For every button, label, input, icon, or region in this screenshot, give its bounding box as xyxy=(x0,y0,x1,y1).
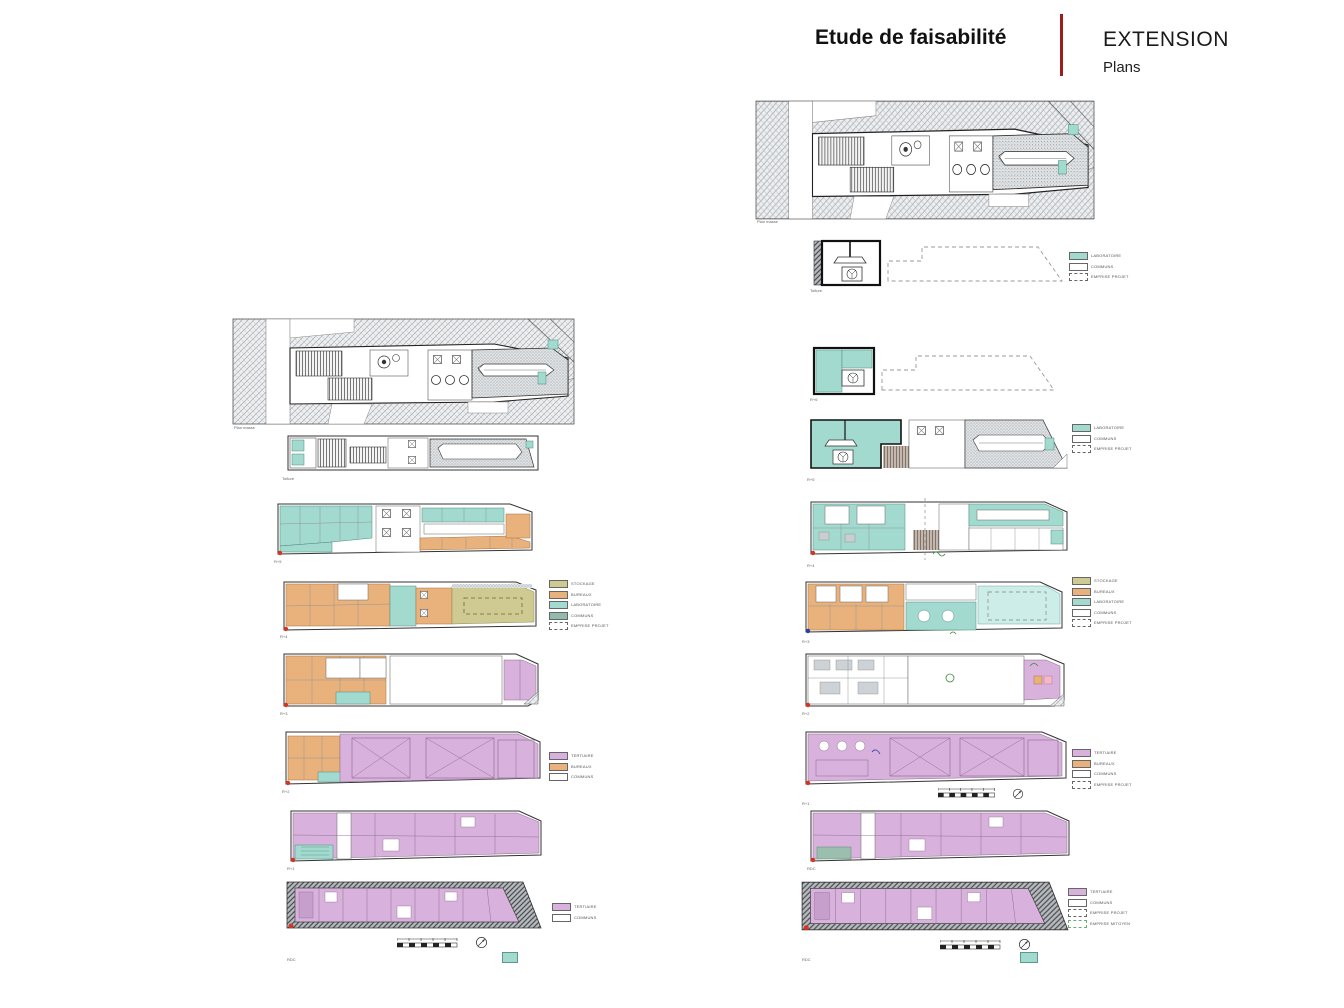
legend-row: BUREAUX xyxy=(549,591,609,599)
legend-left-mid: TERTIAIREBUREAUXCOMMUNS xyxy=(549,752,594,784)
plan-caption: R+4 xyxy=(807,564,814,568)
legend-swatch xyxy=(549,622,568,630)
legend-right-roof: LABORATOIRECOMMUNSEMPRISE PROJET xyxy=(1069,252,1129,284)
plan-caption: R+4 xyxy=(280,635,287,639)
color-chip xyxy=(1020,952,1038,963)
plan-right-toiture: Toiture xyxy=(808,237,1070,293)
plan-caption: Plan masse xyxy=(757,220,778,224)
legend-left-low: TERTIAIRECOMMUNS xyxy=(552,903,597,924)
legend-row: STOCKAGE xyxy=(549,580,609,588)
legend-swatch xyxy=(549,752,568,760)
page-title: Etude de faisabilité xyxy=(815,26,1055,50)
scale-bar-icon xyxy=(938,788,995,797)
plan-caption: R+2 xyxy=(282,790,289,794)
legend-swatch xyxy=(1072,435,1091,443)
plan-caption: R+1 xyxy=(287,867,294,871)
basement-drawing xyxy=(287,882,541,928)
legend-label: EMPRISE MITOYEN xyxy=(1090,922,1130,926)
legend-label: COMMUNS xyxy=(571,775,594,779)
legend-swatch xyxy=(1068,888,1087,896)
legend-row: EMPRISE PROJET xyxy=(1068,909,1130,917)
legend-label: EMPRISE PROJET xyxy=(1094,621,1132,625)
legend-row: COMMUNS xyxy=(549,773,594,781)
site-plan-drawing xyxy=(756,101,1094,219)
legend-swatch xyxy=(549,580,568,588)
legend-row: BUREAUX xyxy=(1072,760,1132,768)
legend-label: LABORATOIRE xyxy=(571,603,601,607)
legend-label: COMMUNS xyxy=(1094,611,1117,615)
legend-row: EMPRISE PROJET xyxy=(549,622,609,630)
plan-left-r5: R+5 xyxy=(272,498,540,564)
legend-swatch xyxy=(1072,598,1091,606)
legend-row: EMPRISE PROJET xyxy=(1072,619,1132,627)
plan-left-r4: R+4 xyxy=(278,576,545,639)
legend-row: COMMUNS xyxy=(1072,609,1132,617)
plan-caption: RDC xyxy=(802,958,811,962)
north-arrow-icon xyxy=(1019,939,1029,949)
legend-row: COMMUNS xyxy=(1069,263,1129,271)
plan-right-r3: R+3 xyxy=(800,576,1068,644)
legend-label: LABORATOIRE xyxy=(1094,600,1124,604)
legend-label: BUREAUX xyxy=(1094,762,1115,766)
legend-row: TERTIAIRE xyxy=(1072,749,1132,757)
legend-row: TERTIAIRE xyxy=(549,752,594,760)
legend-swatch xyxy=(1069,263,1088,271)
plan-caption: R+6 xyxy=(810,398,817,402)
legend-swatch xyxy=(1072,424,1091,432)
legend-row: LABORATOIRE xyxy=(1069,252,1129,260)
legend-row: COMMUNS xyxy=(552,914,597,922)
legend-row: LABORATOIRE xyxy=(1072,424,1132,432)
basement-drawing xyxy=(802,882,1068,930)
legend-label: COMMUNS xyxy=(574,916,597,920)
legend-swatch xyxy=(1072,781,1091,789)
legend-label: LABORATOIRE xyxy=(1091,254,1121,258)
plan-left-rdc: RDC xyxy=(285,876,543,962)
plan-right-rdc-upper: RDC xyxy=(805,805,1077,871)
legend-swatch xyxy=(1072,609,1091,617)
legend-row: EMPRISE PROJET xyxy=(1072,445,1132,453)
legend-label: TERTIAIRE xyxy=(574,905,597,909)
legend-label: BUREAUX xyxy=(1094,590,1115,594)
legend-label: TERTIAIRE xyxy=(1090,890,1113,894)
section-subtitle: Plans xyxy=(1103,59,1141,76)
site-plan-drawing xyxy=(233,319,574,424)
plan-right-r4: R+4 xyxy=(805,496,1073,568)
legend-left-main: STOCKAGEBUREAUXLABORATOIRECOMMUNSEMPRISE… xyxy=(549,580,609,633)
plan-left-r1: R+1 xyxy=(285,805,547,871)
legend-row: TERTIAIRE xyxy=(552,903,597,911)
legend-label: BUREAUX xyxy=(571,593,592,597)
legend-label: STOCKAGE xyxy=(571,582,595,586)
section-title: EXTENSION xyxy=(1103,28,1229,52)
legend-label: COMMUNS xyxy=(571,614,594,618)
legend-swatch xyxy=(549,763,568,771)
legend-row: EMPRISE MITOYEN xyxy=(1068,920,1130,928)
header-divider xyxy=(1060,14,1063,76)
scale-bar-icon xyxy=(397,938,457,947)
legend-right-low: TERTIAIRECOMMUNSEMPRISE PROJETEMPRISE MI… xyxy=(1068,888,1130,930)
legend-swatch xyxy=(1069,252,1088,260)
legend-label: EMPRISE PROJET xyxy=(1090,911,1128,915)
legend-label: COMMUNS xyxy=(1094,437,1117,441)
plan-caption: R+2 xyxy=(802,712,809,716)
plan-caption: Toiture xyxy=(810,289,822,293)
legend-swatch xyxy=(549,773,568,781)
legend-right-main: STOCKAGEBUREAUXLABORATOIRECOMMUNSEMPRISE… xyxy=(1072,577,1132,630)
legend-swatch xyxy=(1072,619,1091,627)
legend-row: LABORATOIRE xyxy=(549,601,609,609)
plan-caption: R+3 xyxy=(280,712,287,716)
legend-swatch xyxy=(1072,445,1091,453)
plan-caption: R+5 xyxy=(807,478,814,482)
plan-caption: R+3 xyxy=(802,640,809,644)
legend-row: COMMUNS xyxy=(549,612,609,620)
legend-right-mid: TERTIAIREBUREAUXCOMMUNSEMPRISE PROJET xyxy=(1072,749,1132,791)
slide: Etude de faisabilité EXTENSION Plans Pla… xyxy=(0,0,1344,1008)
legend-label: COMMUNS xyxy=(1091,265,1114,269)
legend-swatch xyxy=(549,591,568,599)
plan-caption: Plan masse xyxy=(234,426,255,430)
legend-swatch xyxy=(1072,770,1091,778)
plan-right-rdc: RDC xyxy=(800,876,1070,962)
scale-bar-icon xyxy=(940,940,1000,949)
plan-right-r6: R+6 xyxy=(808,344,1063,402)
legend-label: STOCKAGE xyxy=(1094,579,1118,583)
north-arrow-icon xyxy=(476,937,486,947)
legend-swatch xyxy=(1068,899,1087,907)
plan-right-r5: R+5 xyxy=(805,416,1073,482)
legend-label: EMPRISE PROJET xyxy=(1094,783,1132,787)
legend-row: TERTIAIRE xyxy=(1068,888,1130,896)
legend-label: TERTIAIRE xyxy=(571,754,594,758)
plan-right-masse: Plan masse xyxy=(755,100,1095,224)
plan-right-r1: R+1 xyxy=(800,726,1075,806)
plan-left-r2: R+2 xyxy=(280,726,546,794)
legend-swatch xyxy=(1069,273,1088,281)
legend-swatch xyxy=(1068,920,1087,928)
plan-right-r2: R+2 xyxy=(800,648,1070,716)
legend-swatch xyxy=(1072,760,1091,768)
plan-caption: RDC xyxy=(807,867,816,871)
legend-row: BUREAUX xyxy=(549,763,594,771)
legend-row: EMPRISE PROJET xyxy=(1069,273,1129,281)
plan-caption: RDC xyxy=(287,958,296,962)
legend-label: LABORATOIRE xyxy=(1094,426,1124,430)
legend-label: COMMUNS xyxy=(1090,901,1113,905)
legend-right-r4: LABORATOIRECOMMUNSEMPRISE PROJET xyxy=(1072,424,1132,456)
legend-swatch xyxy=(1068,909,1087,917)
legend-swatch xyxy=(1072,749,1091,757)
legend-label: EMPRISE PROJET xyxy=(571,624,609,628)
legend-row: EMPRISE PROJET xyxy=(1072,781,1132,789)
legend-row: COMMUNS xyxy=(1068,899,1130,907)
legend-swatch xyxy=(1072,588,1091,596)
plan-caption: R+5 xyxy=(274,560,281,564)
legend-label: COMMUNS xyxy=(1094,772,1117,776)
legend-swatch xyxy=(552,903,571,911)
legend-swatch xyxy=(549,612,568,620)
legend-row: BUREAUX xyxy=(1072,588,1132,596)
legend-row: COMMUNS xyxy=(1072,435,1132,443)
color-chip xyxy=(502,952,518,963)
legend-label: TERTIAIRE xyxy=(1094,751,1117,755)
legend-row: STOCKAGE xyxy=(1072,577,1132,585)
legend-swatch xyxy=(549,601,568,609)
north-arrow-icon xyxy=(1013,789,1022,798)
plan-left-r3: R+3 xyxy=(278,648,546,716)
legend-swatch xyxy=(552,914,571,922)
legend-label: EMPRISE PROJET xyxy=(1091,275,1129,279)
plan-left-toiture: Toiture xyxy=(280,430,545,481)
legend-row: COMMUNS xyxy=(1072,770,1132,778)
legend-label: BUREAUX xyxy=(571,765,592,769)
legend-label: EMPRISE PROJET xyxy=(1094,447,1132,451)
legend-swatch xyxy=(1072,577,1091,585)
plan-caption: Toiture xyxy=(282,477,294,481)
legend-row: LABORATOIRE xyxy=(1072,598,1132,606)
plan-left-masse: Plan masse xyxy=(232,318,575,430)
